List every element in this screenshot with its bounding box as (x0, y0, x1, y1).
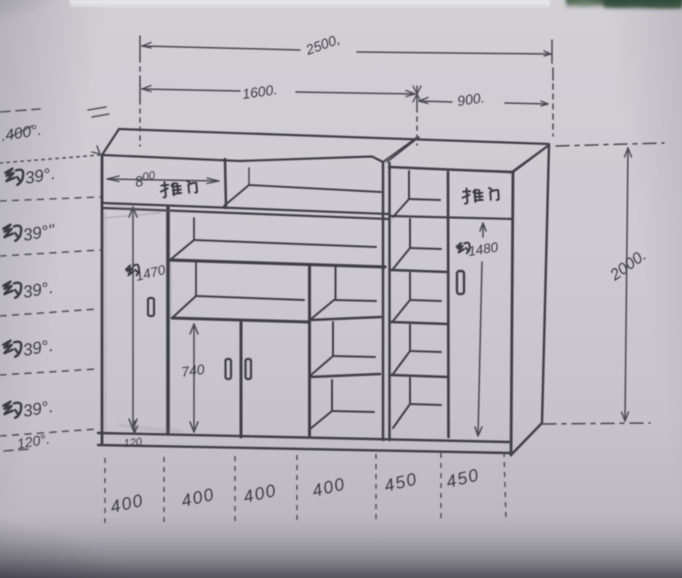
svg-text:.400°.: .400°. (0, 122, 43, 145)
svg-text:400: 400 (108, 490, 145, 517)
svg-text:450: 450 (382, 468, 420, 496)
svg-text:800: 800 (133, 170, 157, 191)
svg-text:120: 120 (123, 436, 143, 450)
svg-text:2500,: 2500, (303, 31, 342, 58)
svg-text:900.: 900. (456, 89, 485, 109)
svg-text:1600.: 1600. (241, 81, 278, 102)
svg-text:400: 400 (310, 473, 348, 501)
svg-text:400: 400 (179, 484, 216, 511)
svg-text:39°.: 39°. (21, 336, 54, 360)
svg-text:39°'': 39°'' (21, 221, 57, 245)
svg-text:400: 400 (241, 480, 278, 507)
svg-text:39°.: 39°. (21, 397, 54, 421)
svg-text:120°.: 120°. (16, 430, 51, 451)
svg-text:2000.: 2000. (607, 247, 650, 285)
svg-text:1480: 1480 (467, 239, 499, 259)
svg-text:450: 450 (444, 464, 482, 492)
svg-text:39°.: 39°. (21, 278, 54, 302)
svg-text:39°.: 39°. (23, 164, 56, 188)
svg-text:740: 740 (180, 361, 206, 380)
